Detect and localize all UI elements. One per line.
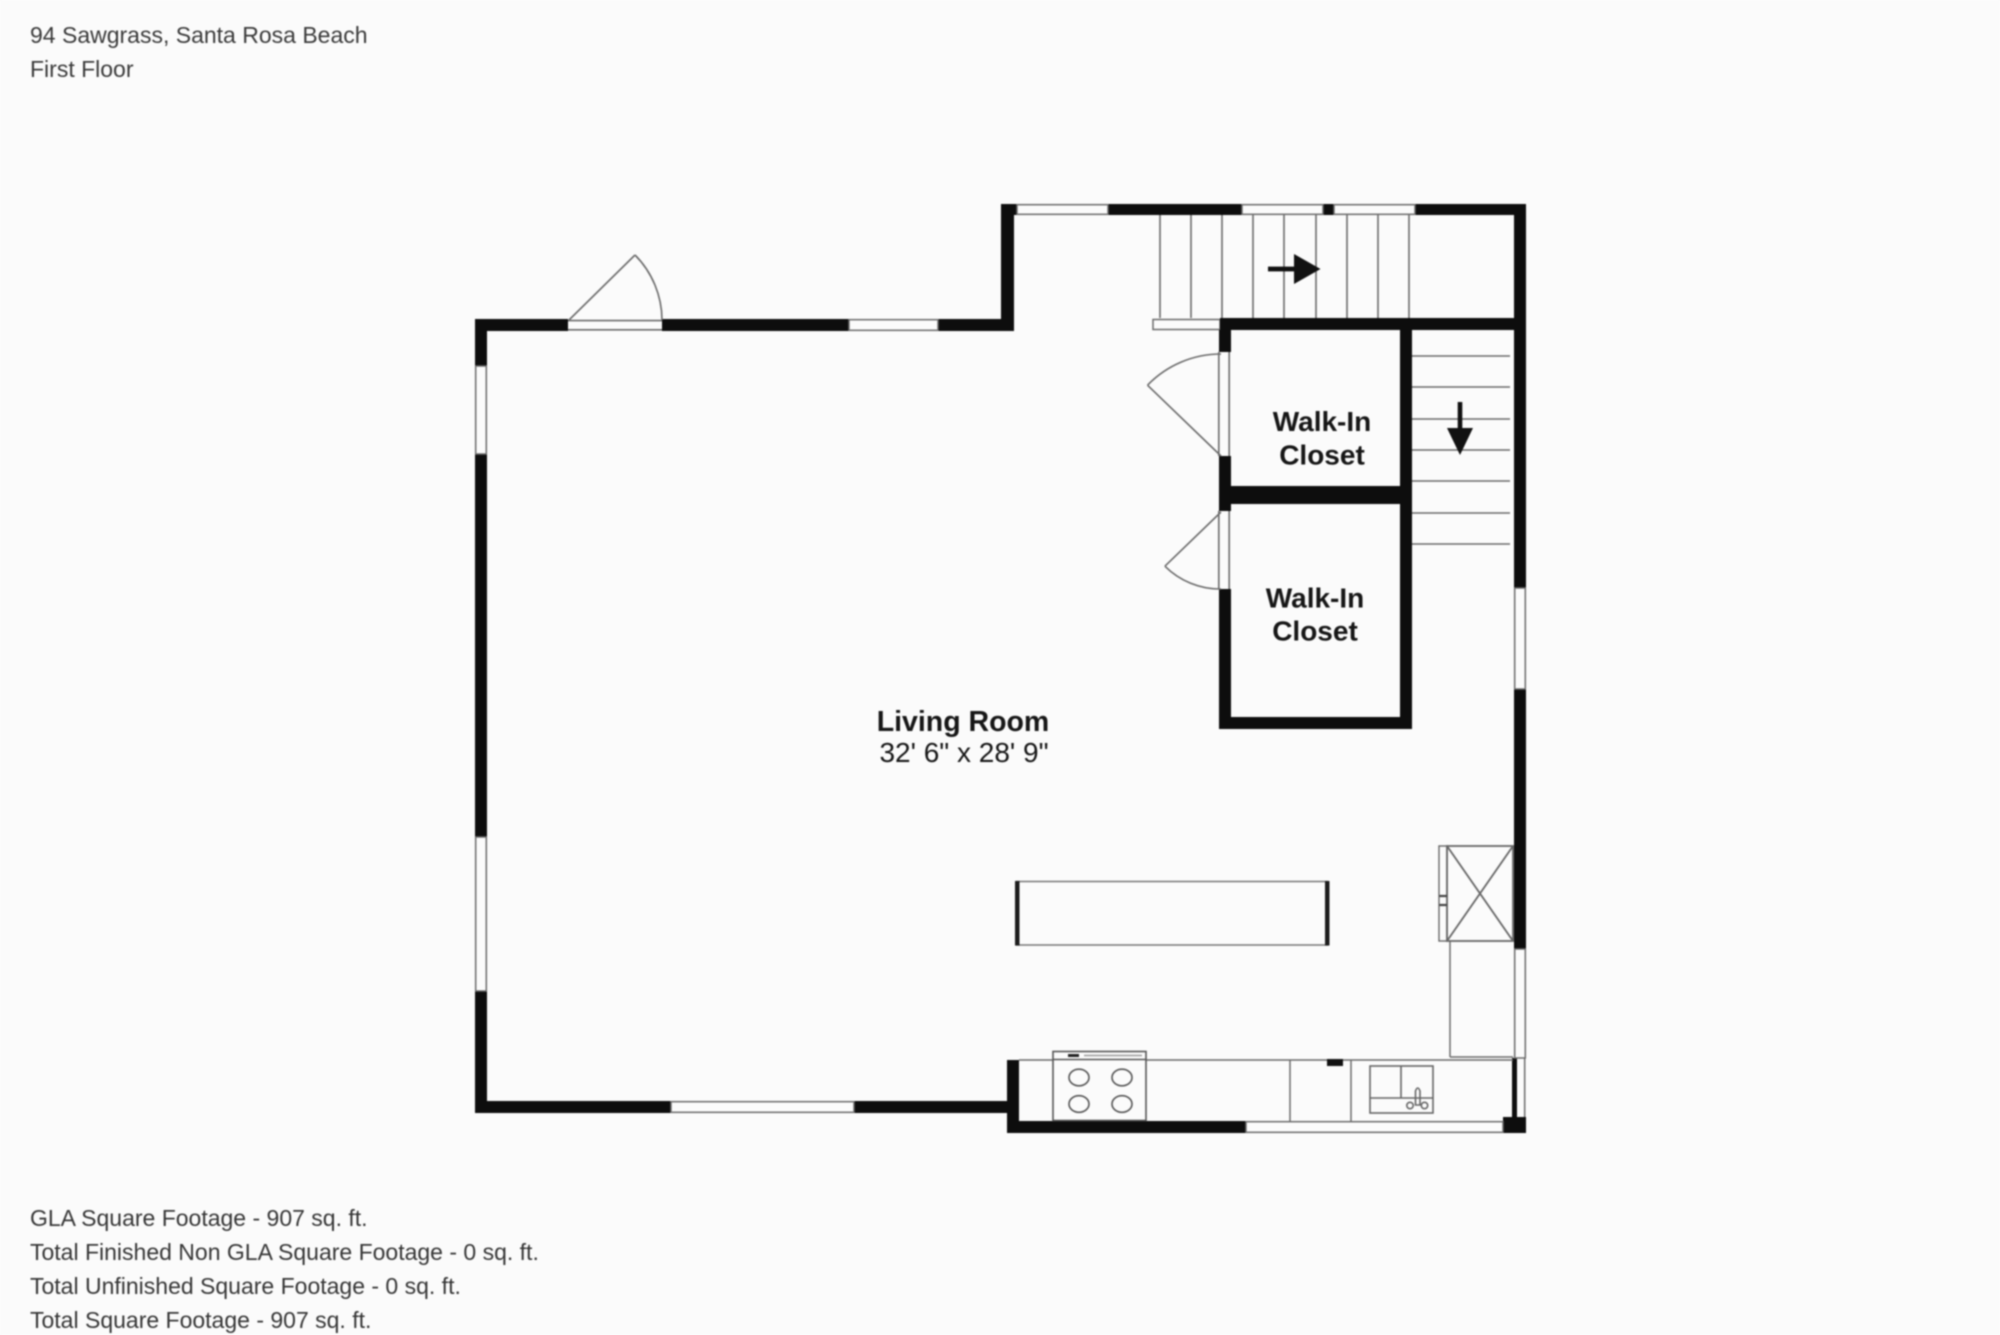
svg-text:Total Square Footage - 907 sq.: Total Square Footage - 907 sq. ft. <box>30 1307 371 1333</box>
svg-text:94 Sawgrass, Santa Rosa Beach: 94 Sawgrass, Santa Rosa Beach <box>30 22 368 48</box>
svg-text:GLA Square Footage - 907 sq. f: GLA Square Footage - 907 sq. ft. <box>30 1205 368 1231</box>
svg-text:Living Room: Living Room <box>877 706 1050 738</box>
svg-text:32' 6" x 28' 9": 32' 6" x 28' 9" <box>879 737 1048 768</box>
svg-text:All room dimensions and square: All room dimensions and square footages … <box>452 1331 1355 1335</box>
svg-text:Walk-In: Walk-In <box>1273 406 1372 437</box>
svg-text:Walk-In: Walk-In <box>1266 583 1365 614</box>
svg-text:Closet: Closet <box>1279 440 1365 471</box>
svg-text:Closet: Closet <box>1272 616 1358 647</box>
svg-text:Total Finished Non GLA Square: Total Finished Non GLA Square Footage - … <box>30 1239 539 1265</box>
svg-text:Total Unfinished Square Footag: Total Unfinished Square Footage - 0 sq. … <box>30 1273 461 1299</box>
svg-text:First Floor: First Floor <box>30 56 134 82</box>
